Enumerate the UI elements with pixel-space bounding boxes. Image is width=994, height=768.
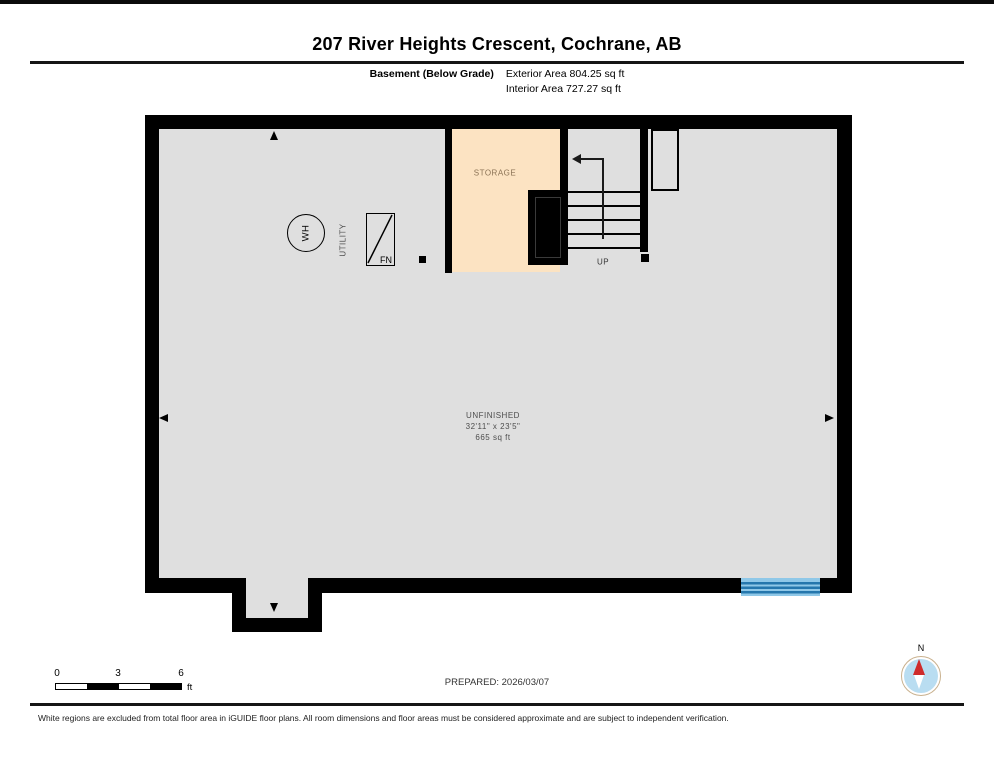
unfinished-room-label: UNFINISHED	[393, 410, 593, 421]
chimney-block	[528, 190, 568, 265]
window	[741, 578, 820, 596]
stairs-up-label: UP	[597, 258, 609, 267]
disclaimer-text: White regions are excluded from total fl…	[38, 713, 958, 723]
floor-summary: Basement (Below Grade) Exterior Area 804…	[0, 68, 994, 95]
stair-tread	[568, 205, 640, 207]
compass-icon: N	[900, 643, 942, 699]
unfinished-room-dimensions: 32'11" x 23'5"	[393, 421, 593, 432]
storage-left-wall	[445, 129, 452, 273]
storage-room-label: STORAGE	[474, 169, 516, 178]
stair-direction-line	[602, 159, 604, 239]
right-arrow-marker-icon	[825, 414, 834, 422]
storage-stair-wall	[560, 129, 568, 190]
compass-needle-north	[913, 659, 925, 675]
unfinished-room-label-block: UNFINISHED 32'11" x 23'5" 665 sq ft	[393, 410, 593, 443]
stair-closet-outline	[651, 129, 679, 191]
stair-arrow-icon	[572, 154, 581, 164]
water-heater-icon: WH	[287, 214, 325, 252]
bottom-arrow-marker-icon	[270, 603, 278, 612]
stair-right-wall	[640, 129, 648, 252]
stair-tread	[568, 219, 640, 221]
compass-needle-south	[914, 675, 924, 689]
floor-name-label: Basement (Below Grade)	[370, 68, 494, 95]
stair-post	[641, 254, 649, 262]
exterior-area-text: Exterior Area 804.25 sq ft	[506, 68, 624, 80]
top-border-bar	[0, 0, 994, 4]
prepared-date: PREPARED: 2026/03/07	[0, 677, 994, 688]
support-post	[419, 256, 426, 263]
floor-areas: Exterior Area 804.25 sq ft Interior Area…	[506, 68, 624, 95]
interior-area-text: Interior Area 727.27 sq ft	[506, 83, 624, 95]
furnace-icon: FN	[366, 213, 395, 266]
page-title: 207 River Heights Crescent, Cochrane, AB	[0, 34, 994, 55]
footer-divider	[30, 703, 964, 706]
stair-tread	[568, 233, 640, 235]
utility-room-label: UTILITY	[339, 223, 348, 256]
stair-tread	[568, 247, 640, 249]
floor-plan-page: 207 River Heights Crescent, Cochrane, AB…	[0, 0, 994, 768]
compass-north-label: N	[900, 643, 942, 653]
stair-arrow-shaft	[581, 158, 604, 160]
left-arrow-marker-icon	[159, 414, 168, 422]
stair-tread	[568, 191, 640, 193]
unfinished-room-area: 665 sq ft	[393, 432, 593, 443]
furnace-label: FN	[380, 255, 392, 265]
chimney-inner-outline	[535, 197, 561, 258]
title-divider	[30, 61, 964, 64]
water-heater-label: WH	[301, 225, 312, 242]
compass-circle	[901, 656, 941, 696]
bumpout-floor	[246, 578, 308, 618]
top-arrow-marker-icon	[270, 131, 278, 140]
